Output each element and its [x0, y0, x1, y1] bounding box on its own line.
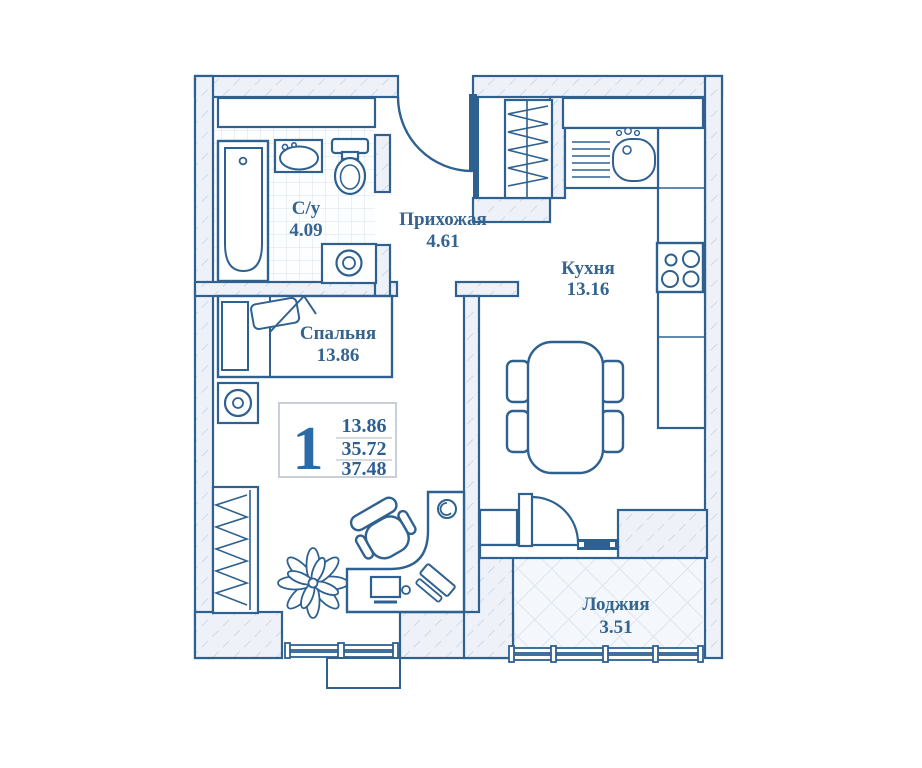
balcony-door-jamb	[480, 510, 517, 545]
wall-right	[705, 76, 722, 658]
kitchen-top-cabinet	[563, 98, 703, 128]
wall-t-stem	[464, 296, 479, 612]
wall-bedroom-top	[195, 282, 397, 296]
floor-plan: С/у 4.09 Прихожая 4.61 Кухня 13.16 Спаль…	[0, 0, 922, 768]
dining-chair	[507, 361, 529, 402]
bathroom-area: 4.09	[289, 220, 322, 241]
floor-plan-page: С/у 4.09 Прихожая 4.61 Кухня 13.16 Спаль…	[0, 0, 922, 768]
balcony-door-leaf	[519, 494, 532, 546]
loggia-area: 3.51	[599, 617, 632, 638]
bedroom-area: 13.86	[317, 345, 360, 366]
bathroom-sink	[275, 140, 322, 172]
window-ledge	[327, 658, 400, 688]
entrance-door-leaf	[469, 94, 477, 172]
monitor-icon	[371, 577, 400, 597]
bathroom-mezzanine-shaft	[218, 98, 375, 127]
entrance-door-arc	[398, 97, 472, 171]
toilet	[332, 139, 368, 194]
hallway-area: 4.61	[426, 231, 459, 252]
kitchen-label: Кухня	[561, 258, 615, 279]
kitchen-area: 13.16	[567, 279, 610, 300]
room-window	[285, 643, 398, 658]
wall-bathroom-right-lower	[375, 245, 390, 296]
balcony-door-arc	[532, 497, 578, 543]
office-chair	[345, 493, 422, 568]
dining-table	[528, 342, 603, 473]
legend-area-no-loggia: 35.72	[342, 438, 387, 460]
wall-top-right	[473, 76, 722, 97]
dining-set	[507, 342, 623, 473]
sill-end-left	[579, 542, 584, 547]
legend-box: 1 13.86 35.72 37.48	[279, 403, 396, 483]
dining-chair	[507, 411, 529, 452]
wall-bathroom-right-upper	[375, 135, 390, 192]
dining-chair	[601, 411, 623, 452]
wall-t-flange	[456, 282, 518, 296]
room-wardrobe	[213, 487, 258, 613]
dining-chair	[601, 361, 623, 402]
hallway-label: Прихожая	[399, 209, 487, 230]
sill-end-right	[610, 542, 615, 547]
legend-rooms-count: 1	[293, 415, 324, 483]
legend-living-area: 13.86	[342, 415, 387, 437]
faucet-icon	[623, 146, 631, 154]
legend-total-area: 37.48	[342, 458, 387, 480]
mouse-icon	[402, 586, 410, 594]
wall-top-left	[195, 76, 398, 97]
wall-left	[195, 76, 213, 658]
plant-icon	[278, 548, 348, 618]
kitchen-sink-bowl	[613, 139, 655, 181]
balcony-door	[519, 494, 618, 550]
bathroom-label: С/у	[292, 198, 321, 219]
loggia-label: Лоджия	[582, 594, 649, 615]
entrance-door	[398, 94, 477, 172]
bedside-stool	[218, 383, 258, 423]
bathtub	[218, 141, 268, 281]
washing-machine	[322, 244, 376, 283]
loggia-window	[509, 646, 703, 662]
stove	[657, 243, 703, 292]
wall-bottom-left	[195, 612, 282, 658]
kitchen-sink-unit	[565, 128, 658, 188]
entry-closet	[505, 100, 552, 198]
bedroom-label: Спальня	[300, 323, 376, 344]
wall-kitchen-loggia	[618, 510, 707, 558]
